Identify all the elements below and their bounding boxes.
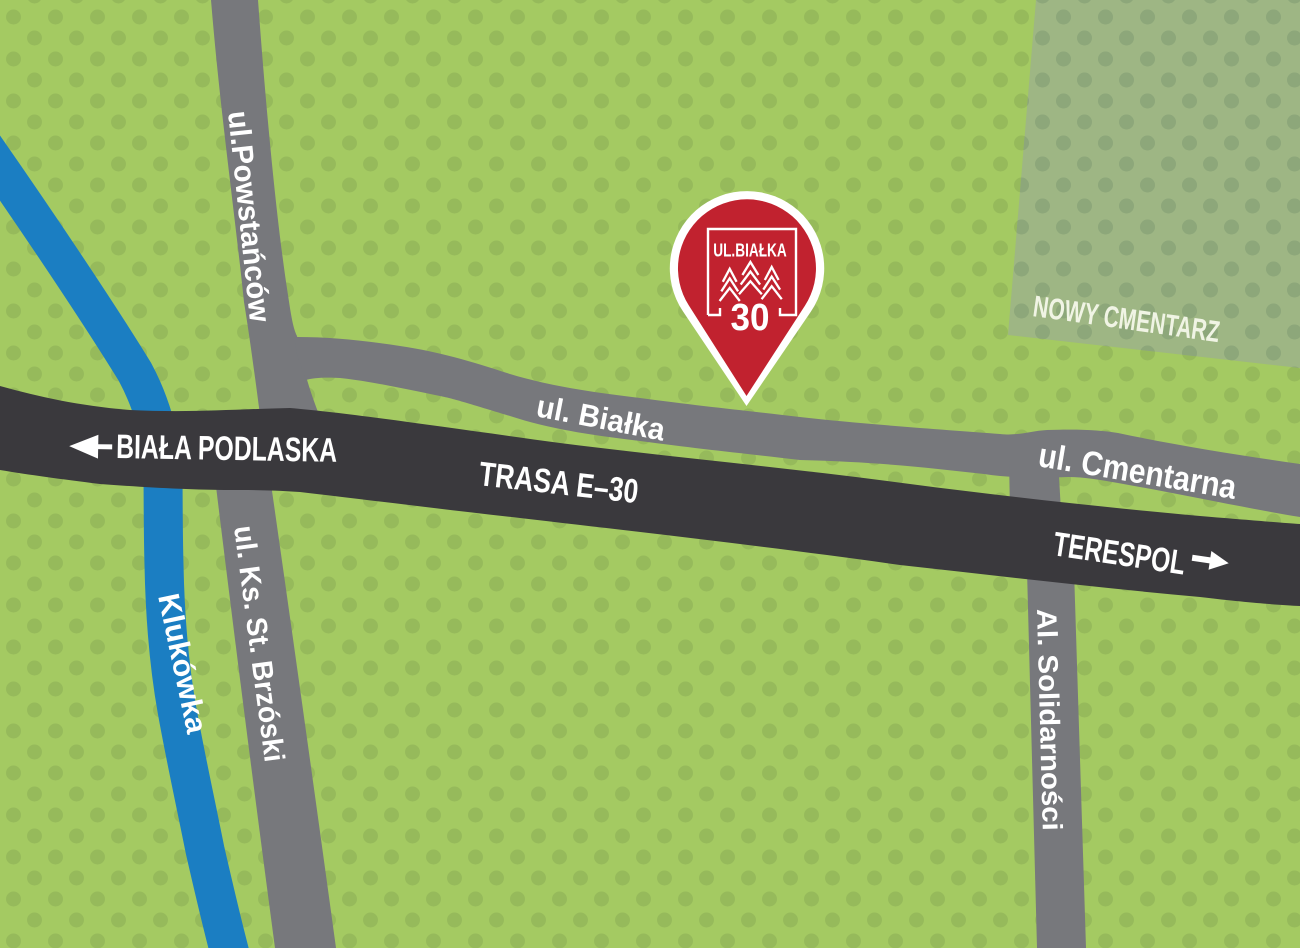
svg-text:BIAŁA PODLASKA: BIAŁA PODLASKA bbox=[116, 428, 338, 470]
svg-text:Al. Solidarności: Al. Solidarności bbox=[1031, 608, 1068, 831]
svg-text:30: 30 bbox=[731, 297, 770, 339]
svg-text:UL.BIAŁKA: UL.BIAŁKA bbox=[713, 241, 787, 261]
